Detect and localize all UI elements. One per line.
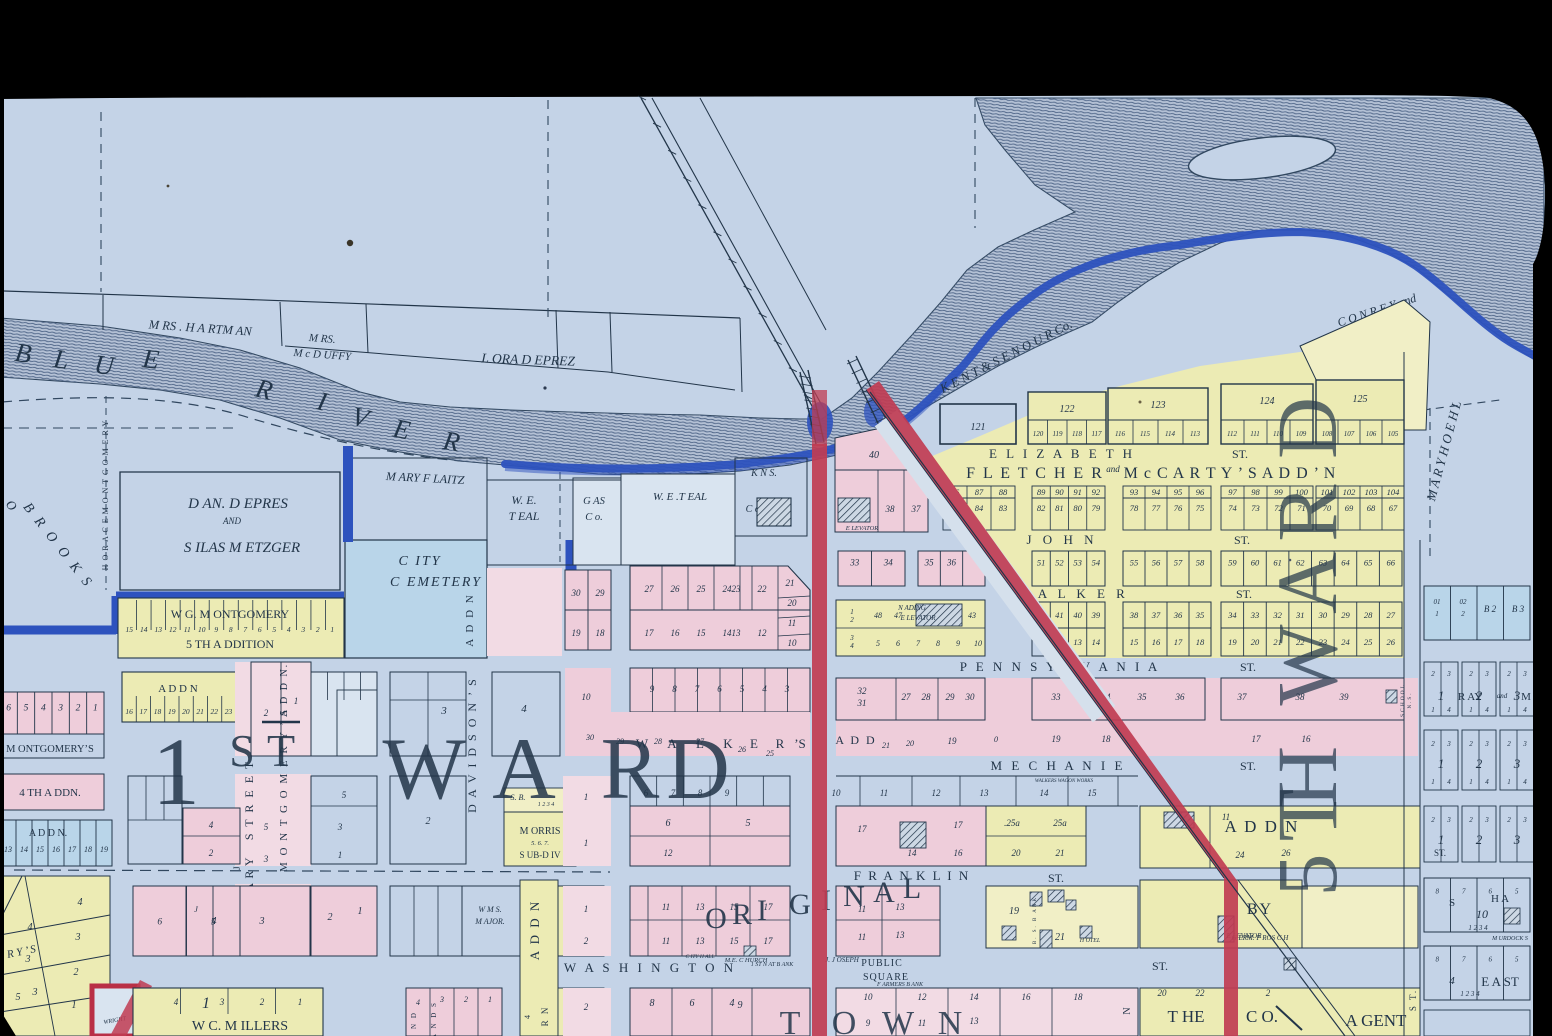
svg-text:21: 21 xyxy=(786,578,795,588)
svg-text:S: S xyxy=(1449,897,1455,909)
svg-text:13: 13 xyxy=(896,930,906,940)
svg-text:SCHOOL: SCHOOL xyxy=(1400,683,1406,717)
svg-text:75: 75 xyxy=(1196,503,1205,513)
svg-text:11: 11 xyxy=(662,936,670,946)
svg-text:51: 51 xyxy=(1037,557,1046,567)
svg-text:13: 13 xyxy=(696,902,706,912)
svg-text:B 2: B 2 xyxy=(1484,604,1497,614)
svg-text:18: 18 xyxy=(84,845,92,854)
svg-text:A D D N.: A D D N. xyxy=(279,663,290,717)
svg-text:D AN. D EPRES: D AN. D EPRES xyxy=(187,496,288,512)
svg-text:F L E T C H E R: F L E T C H E R xyxy=(966,465,1104,482)
svg-text:32: 32 xyxy=(857,686,868,696)
svg-text:33: 33 xyxy=(1051,692,1062,702)
svg-text:A N D S: A N D S xyxy=(430,1001,438,1036)
svg-text:11: 11 xyxy=(858,932,866,942)
svg-text:1: 1 xyxy=(1435,610,1439,618)
svg-text:117: 117 xyxy=(1092,430,1102,438)
svg-text:4: 4 xyxy=(730,998,735,1009)
svg-text:84: 84 xyxy=(975,503,984,513)
svg-text:27: 27 xyxy=(1386,610,1395,620)
svg-text:4: 4 xyxy=(287,625,291,634)
svg-text:D: D xyxy=(666,721,730,818)
svg-text:10: 10 xyxy=(582,692,592,702)
svg-text:93: 93 xyxy=(1130,487,1139,497)
svg-text:J O H N: J O H N xyxy=(1027,532,1098,547)
svg-text:15: 15 xyxy=(1088,788,1098,798)
svg-text:1: 1 xyxy=(298,997,303,1007)
svg-text:77: 77 xyxy=(1152,503,1161,513)
svg-text:O: O xyxy=(832,1005,857,1036)
svg-text:19: 19 xyxy=(1228,637,1237,647)
svg-text:16: 16 xyxy=(671,628,681,638)
svg-text:29: 29 xyxy=(946,692,956,702)
svg-text:3: 3 xyxy=(75,932,81,943)
svg-text:3: 3 xyxy=(1522,670,1527,678)
svg-text:24: 24 xyxy=(1236,850,1246,860)
svg-text:33: 33 xyxy=(1250,610,1260,620)
svg-text:6: 6 xyxy=(896,639,900,648)
svg-text:5: 5 xyxy=(1515,887,1519,895)
svg-text:A GENT: A GENT xyxy=(1346,1011,1408,1030)
svg-text:C EMETERY: C EMETERY xyxy=(390,575,482,590)
svg-text:A: A xyxy=(873,876,895,909)
svg-text:79: 79 xyxy=(1092,503,1101,513)
svg-text:3: 3 xyxy=(1522,816,1527,824)
svg-text:119: 119 xyxy=(1053,430,1063,438)
svg-text:36: 36 xyxy=(1173,610,1183,620)
svg-text:A D D: A D D xyxy=(835,733,876,747)
svg-text:T: T xyxy=(267,725,295,776)
svg-text:87: 87 xyxy=(975,487,984,497)
svg-text:ST.: ST. xyxy=(1232,447,1248,461)
svg-text:83: 83 xyxy=(999,503,1008,513)
svg-text:ST.: ST. xyxy=(1240,660,1256,674)
svg-text:3: 3 xyxy=(337,822,343,832)
svg-text:E LEVATOR: E LEVATOR xyxy=(845,525,879,532)
svg-text:2: 2 xyxy=(1469,740,1473,748)
svg-text:67: 67 xyxy=(1389,503,1398,513)
svg-text:11: 11 xyxy=(788,618,796,628)
svg-text:17: 17 xyxy=(1252,734,1262,744)
svg-text:E LEVATOR: E LEVATOR xyxy=(899,614,936,622)
svg-text:12: 12 xyxy=(932,788,942,798)
svg-text:1: 1 xyxy=(72,1000,77,1011)
svg-text:7: 7 xyxy=(1462,955,1466,963)
svg-text:5: 5 xyxy=(272,625,276,634)
svg-text:16: 16 xyxy=(52,845,60,854)
svg-text:2: 2 xyxy=(464,995,468,1004)
svg-text:AND: AND xyxy=(222,516,242,526)
svg-text:.25a: .25a xyxy=(1004,818,1020,828)
svg-text:9: 9 xyxy=(738,1000,743,1011)
svg-text:2: 2 xyxy=(264,708,269,718)
svg-text:28: 28 xyxy=(1364,610,1373,620)
svg-text:16: 16 xyxy=(1302,734,1312,744)
svg-text:19: 19 xyxy=(1009,906,1019,917)
svg-text:39: 39 xyxy=(1091,610,1101,620)
svg-text:12: 12 xyxy=(169,625,177,634)
svg-text:S: S xyxy=(229,725,255,776)
svg-text:5 TH A DDITION: 5 TH A DDITION xyxy=(186,637,274,651)
svg-text:6: 6 xyxy=(6,703,11,713)
svg-text:41: 41 xyxy=(1055,610,1064,620)
svg-text:16: 16 xyxy=(1022,992,1032,1002)
svg-text:M: M xyxy=(1521,691,1531,703)
svg-text:2: 2 xyxy=(209,848,214,858)
svg-text:20: 20 xyxy=(1158,988,1168,998)
svg-text:1: 1 xyxy=(1469,706,1473,714)
svg-text:M AJOR.: M AJOR. xyxy=(474,917,505,926)
svg-text:14: 14 xyxy=(140,625,148,634)
svg-text:M URDOCK S: M URDOCK S xyxy=(1491,936,1528,942)
svg-text:1 2 3 4: 1 2 3 4 xyxy=(1460,990,1480,998)
svg-text:34: 34 xyxy=(883,558,894,568)
svg-text:94: 94 xyxy=(1152,487,1161,497)
svg-text:3: 3 xyxy=(1446,670,1451,678)
svg-text:30: 30 xyxy=(585,733,594,742)
svg-text:4: 4 xyxy=(521,703,527,715)
svg-text:16: 16 xyxy=(1152,637,1161,647)
svg-text:4: 4 xyxy=(1447,778,1451,786)
svg-text:01: 01 xyxy=(1434,598,1441,606)
svg-text:8: 8 xyxy=(672,684,677,694)
svg-text:ST.: ST. xyxy=(1240,759,1256,773)
svg-text:30: 30 xyxy=(965,692,976,702)
svg-text:4: 4 xyxy=(78,897,83,908)
svg-text:2: 2 xyxy=(1469,670,1473,678)
svg-text:9: 9 xyxy=(956,639,960,648)
svg-text:C o.: C o. xyxy=(585,512,603,523)
svg-text:H OTEL: H OTEL xyxy=(1079,938,1101,944)
svg-text:7: 7 xyxy=(695,684,700,694)
svg-text:1: 1 xyxy=(338,850,343,860)
svg-text:10: 10 xyxy=(832,788,842,798)
svg-text:3: 3 xyxy=(57,703,63,713)
svg-text:2: 2 xyxy=(1469,816,1473,824)
svg-text:4: 4 xyxy=(1523,778,1527,786)
svg-text:S T.: S T. xyxy=(1408,989,1418,1011)
svg-text:26: 26 xyxy=(1386,637,1395,647)
svg-text:105: 105 xyxy=(1388,430,1399,438)
svg-text:19: 19 xyxy=(100,845,108,854)
svg-text:10: 10 xyxy=(864,992,874,1002)
svg-text:K N S.: K N S. xyxy=(750,468,777,479)
svg-text:81: 81 xyxy=(1055,503,1064,513)
svg-text:1: 1 xyxy=(1507,778,1511,786)
svg-text:R N: R N xyxy=(540,1006,550,1027)
svg-text:R AY: R AY xyxy=(1458,691,1482,703)
svg-text:20: 20 xyxy=(1012,848,1022,858)
svg-text:5. 6. 7.: 5. 6. 7. xyxy=(531,840,549,847)
svg-text:16: 16 xyxy=(125,707,133,716)
svg-text:L: L xyxy=(903,872,921,905)
svg-text:18: 18 xyxy=(1102,734,1112,744)
svg-text:76: 76 xyxy=(1174,503,1183,513)
svg-text:13: 13 xyxy=(696,936,706,946)
svg-text:3: 3 xyxy=(1446,740,1451,748)
svg-text:10: 10 xyxy=(1476,907,1488,921)
svg-text:1 ST N AT B ANK: 1 ST N AT B ANK xyxy=(751,962,795,968)
svg-text:17: 17 xyxy=(858,824,868,834)
svg-text:M ONTGOMERY’S: M ONTGOMERY’S xyxy=(6,744,94,755)
svg-text:97: 97 xyxy=(1228,487,1237,497)
svg-text:1 2 3 4: 1 2 3 4 xyxy=(1468,924,1488,932)
svg-text:36: 36 xyxy=(946,558,957,568)
svg-text:3: 3 xyxy=(440,705,447,717)
svg-text:6: 6 xyxy=(690,998,695,1009)
svg-text:92: 92 xyxy=(1092,487,1101,497)
svg-text:34: 34 xyxy=(1227,610,1237,620)
svg-text:37: 37 xyxy=(1237,692,1248,702)
svg-text:22: 22 xyxy=(758,584,768,594)
svg-text:35: 35 xyxy=(1137,692,1148,702)
svg-text:13: 13 xyxy=(732,628,742,638)
svg-text:123: 123 xyxy=(1151,400,1166,411)
svg-text:11: 11 xyxy=(662,902,670,912)
svg-text:1: 1 xyxy=(584,904,589,914)
svg-text:58: 58 xyxy=(1196,557,1205,567)
svg-text:8: 8 xyxy=(936,639,940,648)
svg-text:1: 1 xyxy=(1438,756,1445,771)
svg-text:25a: 25a xyxy=(1053,818,1067,828)
svg-text:3: 3 xyxy=(784,684,790,694)
svg-text:4: 4 xyxy=(416,998,420,1007)
svg-text:PUBLIC: PUBLIC xyxy=(861,958,903,969)
svg-text:N.S.: N.S. xyxy=(1408,692,1413,709)
svg-text:C ITY: C ITY xyxy=(398,554,441,569)
svg-text:112: 112 xyxy=(1227,430,1237,438)
svg-text:29: 29 xyxy=(596,588,606,598)
svg-text:WALKERS WAGON WORKS: WALKERS WAGON WORKS xyxy=(1035,779,1094,784)
svg-text:1: 1 xyxy=(584,838,589,848)
svg-text:1: 1 xyxy=(294,696,299,706)
svg-text:14: 14 xyxy=(20,845,28,854)
svg-text:2: 2 xyxy=(1507,670,1511,678)
svg-text:14: 14 xyxy=(1092,637,1101,647)
svg-text:17: 17 xyxy=(140,707,148,716)
svg-text:1: 1 xyxy=(202,995,210,1012)
svg-text:4: 4 xyxy=(41,703,46,713)
svg-text:22: 22 xyxy=(211,707,219,716)
svg-text:5: 5 xyxy=(876,639,880,648)
svg-text:15: 15 xyxy=(126,625,134,634)
svg-text:A D D N: A D D N xyxy=(464,593,476,646)
svg-text:89: 89 xyxy=(1037,487,1046,497)
svg-text:R: R xyxy=(1259,484,1355,542)
svg-text:ST.: ST. xyxy=(1234,533,1250,547)
svg-text:26: 26 xyxy=(738,745,746,754)
svg-text:M c C A R T Y ’ S A D D ’ N: M c C A R T Y ’ S A D D ’ N xyxy=(1124,465,1337,482)
svg-text:5: 5 xyxy=(740,684,745,694)
svg-text:B 3: B 3 xyxy=(1512,604,1525,614)
svg-text:N: N xyxy=(843,880,865,913)
svg-text:116: 116 xyxy=(1115,430,1125,438)
svg-text:3: 3 xyxy=(849,634,854,642)
svg-text:T HE: T HE xyxy=(1168,1007,1205,1026)
svg-text:5: 5 xyxy=(1515,955,1519,963)
svg-text:H: H xyxy=(1259,746,1355,808)
svg-text:27: 27 xyxy=(645,584,655,594)
svg-text:1: 1 xyxy=(1469,778,1473,786)
svg-text:M RS.: M RS. xyxy=(307,332,336,346)
svg-text:R: R xyxy=(776,736,785,751)
svg-text:2: 2 xyxy=(1431,816,1435,824)
svg-text:74: 74 xyxy=(1228,503,1237,513)
svg-text:C O.: C O. xyxy=(1246,1007,1278,1026)
svg-text:2: 2 xyxy=(584,1002,589,1012)
svg-text:3: 3 xyxy=(1484,670,1489,678)
svg-text:2: 2 xyxy=(1476,832,1483,847)
svg-text:A: A xyxy=(1259,552,1355,614)
svg-text:10: 10 xyxy=(198,625,206,634)
svg-text:9: 9 xyxy=(214,625,218,634)
svg-text:A: A xyxy=(492,721,556,818)
svg-text:95: 95 xyxy=(1174,487,1183,497)
svg-text:E L I Z A B E T H: E L I Z A B E T H xyxy=(989,446,1135,461)
svg-text:H A: H A xyxy=(1491,893,1509,905)
svg-text:4: 4 xyxy=(850,642,854,650)
svg-text:3: 3 xyxy=(1446,816,1451,824)
svg-text:12: 12 xyxy=(758,628,768,638)
svg-text:1: 1 xyxy=(1438,832,1445,847)
svg-text:20: 20 xyxy=(788,598,798,608)
svg-text:13: 13 xyxy=(4,845,12,854)
svg-text:40: 40 xyxy=(869,450,879,461)
svg-text:4: 4 xyxy=(1447,706,1451,714)
svg-text:3: 3 xyxy=(1522,740,1527,748)
svg-text:4: 4 xyxy=(1449,975,1455,987)
svg-text:N: N xyxy=(938,1005,963,1036)
svg-text:18: 18 xyxy=(154,707,162,716)
svg-text:114: 114 xyxy=(1165,430,1175,438)
svg-text:13: 13 xyxy=(1073,637,1082,647)
svg-text:M ORRIS: M ORRIS xyxy=(520,826,561,837)
svg-text:W: W xyxy=(1259,624,1355,705)
svg-text:57: 57 xyxy=(1174,557,1183,567)
svg-text:11: 11 xyxy=(880,788,888,798)
svg-text:19: 19 xyxy=(168,707,176,716)
svg-text:W G. M ONTGOMERY: W G. M ONTGOMERY xyxy=(171,607,290,621)
svg-text:9: 9 xyxy=(650,684,655,694)
svg-text:20: 20 xyxy=(906,739,914,748)
svg-text:106: 106 xyxy=(1366,430,1377,438)
svg-text:78: 78 xyxy=(1130,503,1139,513)
svg-text:B. S. B ANK: B. S. B ANK xyxy=(1033,896,1038,944)
svg-text:26: 26 xyxy=(671,584,681,594)
svg-text:4: 4 xyxy=(1523,706,1527,714)
svg-text:5: 5 xyxy=(746,818,751,829)
svg-text:A D D N: A D D N xyxy=(527,900,542,961)
svg-text:3: 3 xyxy=(1513,688,1521,703)
svg-text:14: 14 xyxy=(970,992,980,1002)
svg-text:E A ST: E A ST xyxy=(1481,974,1519,989)
svg-text:8: 8 xyxy=(650,998,655,1009)
svg-text:38: 38 xyxy=(885,504,896,514)
svg-text:J. J OSEPH: J. J OSEPH xyxy=(825,956,860,964)
svg-text:54: 54 xyxy=(1092,557,1101,567)
svg-text:1: 1 xyxy=(152,718,200,825)
svg-text:J: J xyxy=(194,905,198,914)
svg-text:5: 5 xyxy=(24,703,29,713)
svg-text:T EAL: T EAL xyxy=(509,509,540,523)
svg-text:N: N xyxy=(1122,1005,1133,1014)
svg-text:35: 35 xyxy=(924,558,935,568)
svg-text:118: 118 xyxy=(1072,430,1082,438)
svg-text:4: 4 xyxy=(762,684,767,694)
svg-text:59: 59 xyxy=(1228,557,1237,567)
svg-text:6: 6 xyxy=(717,684,722,694)
svg-text:3: 3 xyxy=(300,625,305,634)
svg-text:1: 1 xyxy=(93,703,98,713)
svg-text:66: 66 xyxy=(1386,557,1395,567)
svg-text:3: 3 xyxy=(259,916,265,927)
svg-text:2: 2 xyxy=(1431,740,1435,748)
svg-text:82: 82 xyxy=(1037,503,1046,513)
svg-text:D A V I D S O N ’ S: D A V I D S O N ’ S xyxy=(465,677,479,813)
svg-text:5: 5 xyxy=(264,822,269,832)
svg-text:2: 2 xyxy=(260,997,265,1007)
svg-text:A D D N.: A D D N. xyxy=(29,828,67,839)
svg-text:S UB-D IV: S UB-D IV xyxy=(519,850,561,860)
svg-text:W: W xyxy=(882,1005,915,1036)
svg-text:30: 30 xyxy=(571,588,582,598)
svg-text:E: E xyxy=(140,343,161,375)
svg-text:9: 9 xyxy=(866,1018,871,1028)
svg-text:12: 12 xyxy=(918,992,928,1002)
svg-text:8: 8 xyxy=(229,625,233,634)
svg-text:3: 3 xyxy=(32,987,38,998)
svg-text:and: and xyxy=(1106,464,1120,474)
svg-text:18: 18 xyxy=(1196,637,1205,647)
svg-text:3: 3 xyxy=(263,854,269,864)
svg-text:2: 2 xyxy=(1461,610,1465,618)
svg-text:4 TH A DDN.: 4 TH A DDN. xyxy=(19,787,81,799)
svg-text:7: 7 xyxy=(1462,887,1466,895)
svg-text:56: 56 xyxy=(1152,557,1161,567)
svg-text:1: 1 xyxy=(584,792,589,802)
svg-text:H O R A C E M O N T G O M E R: H O R A C E M O N T G O M E R Y xyxy=(101,420,110,571)
svg-text:F ARMERS B ANK: F ARMERS B ANK xyxy=(876,982,924,988)
svg-text:6: 6 xyxy=(1489,955,1493,963)
svg-text:W: W xyxy=(382,721,465,818)
svg-text:17: 17 xyxy=(954,820,964,830)
svg-text:R: R xyxy=(601,721,660,818)
svg-text:2: 2 xyxy=(1507,816,1511,824)
svg-text:21: 21 xyxy=(1055,932,1065,943)
svg-text:19: 19 xyxy=(948,736,958,746)
svg-text:43: 43 xyxy=(968,611,976,620)
svg-text:65: 65 xyxy=(1364,557,1373,567)
svg-text:2: 2 xyxy=(1476,756,1483,771)
svg-text:17: 17 xyxy=(1174,637,1183,647)
svg-text:ST.: ST. xyxy=(1434,848,1446,858)
svg-text:37: 37 xyxy=(1151,610,1161,620)
svg-text:40: 40 xyxy=(1073,610,1082,620)
svg-text:4: 4 xyxy=(523,1013,532,1019)
svg-text:N D: N D xyxy=(410,1011,418,1029)
svg-text:2: 2 xyxy=(850,616,854,624)
svg-text:17: 17 xyxy=(764,936,774,946)
svg-text:25: 25 xyxy=(1364,637,1373,647)
svg-text:21: 21 xyxy=(1056,848,1065,858)
svg-text:7: 7 xyxy=(243,625,247,634)
svg-text:68: 68 xyxy=(1367,503,1376,513)
svg-text:02: 02 xyxy=(1460,598,1468,606)
svg-text:10: 10 xyxy=(974,639,982,648)
svg-text:4: 4 xyxy=(28,922,33,933)
svg-text:1: 1 xyxy=(330,625,334,634)
